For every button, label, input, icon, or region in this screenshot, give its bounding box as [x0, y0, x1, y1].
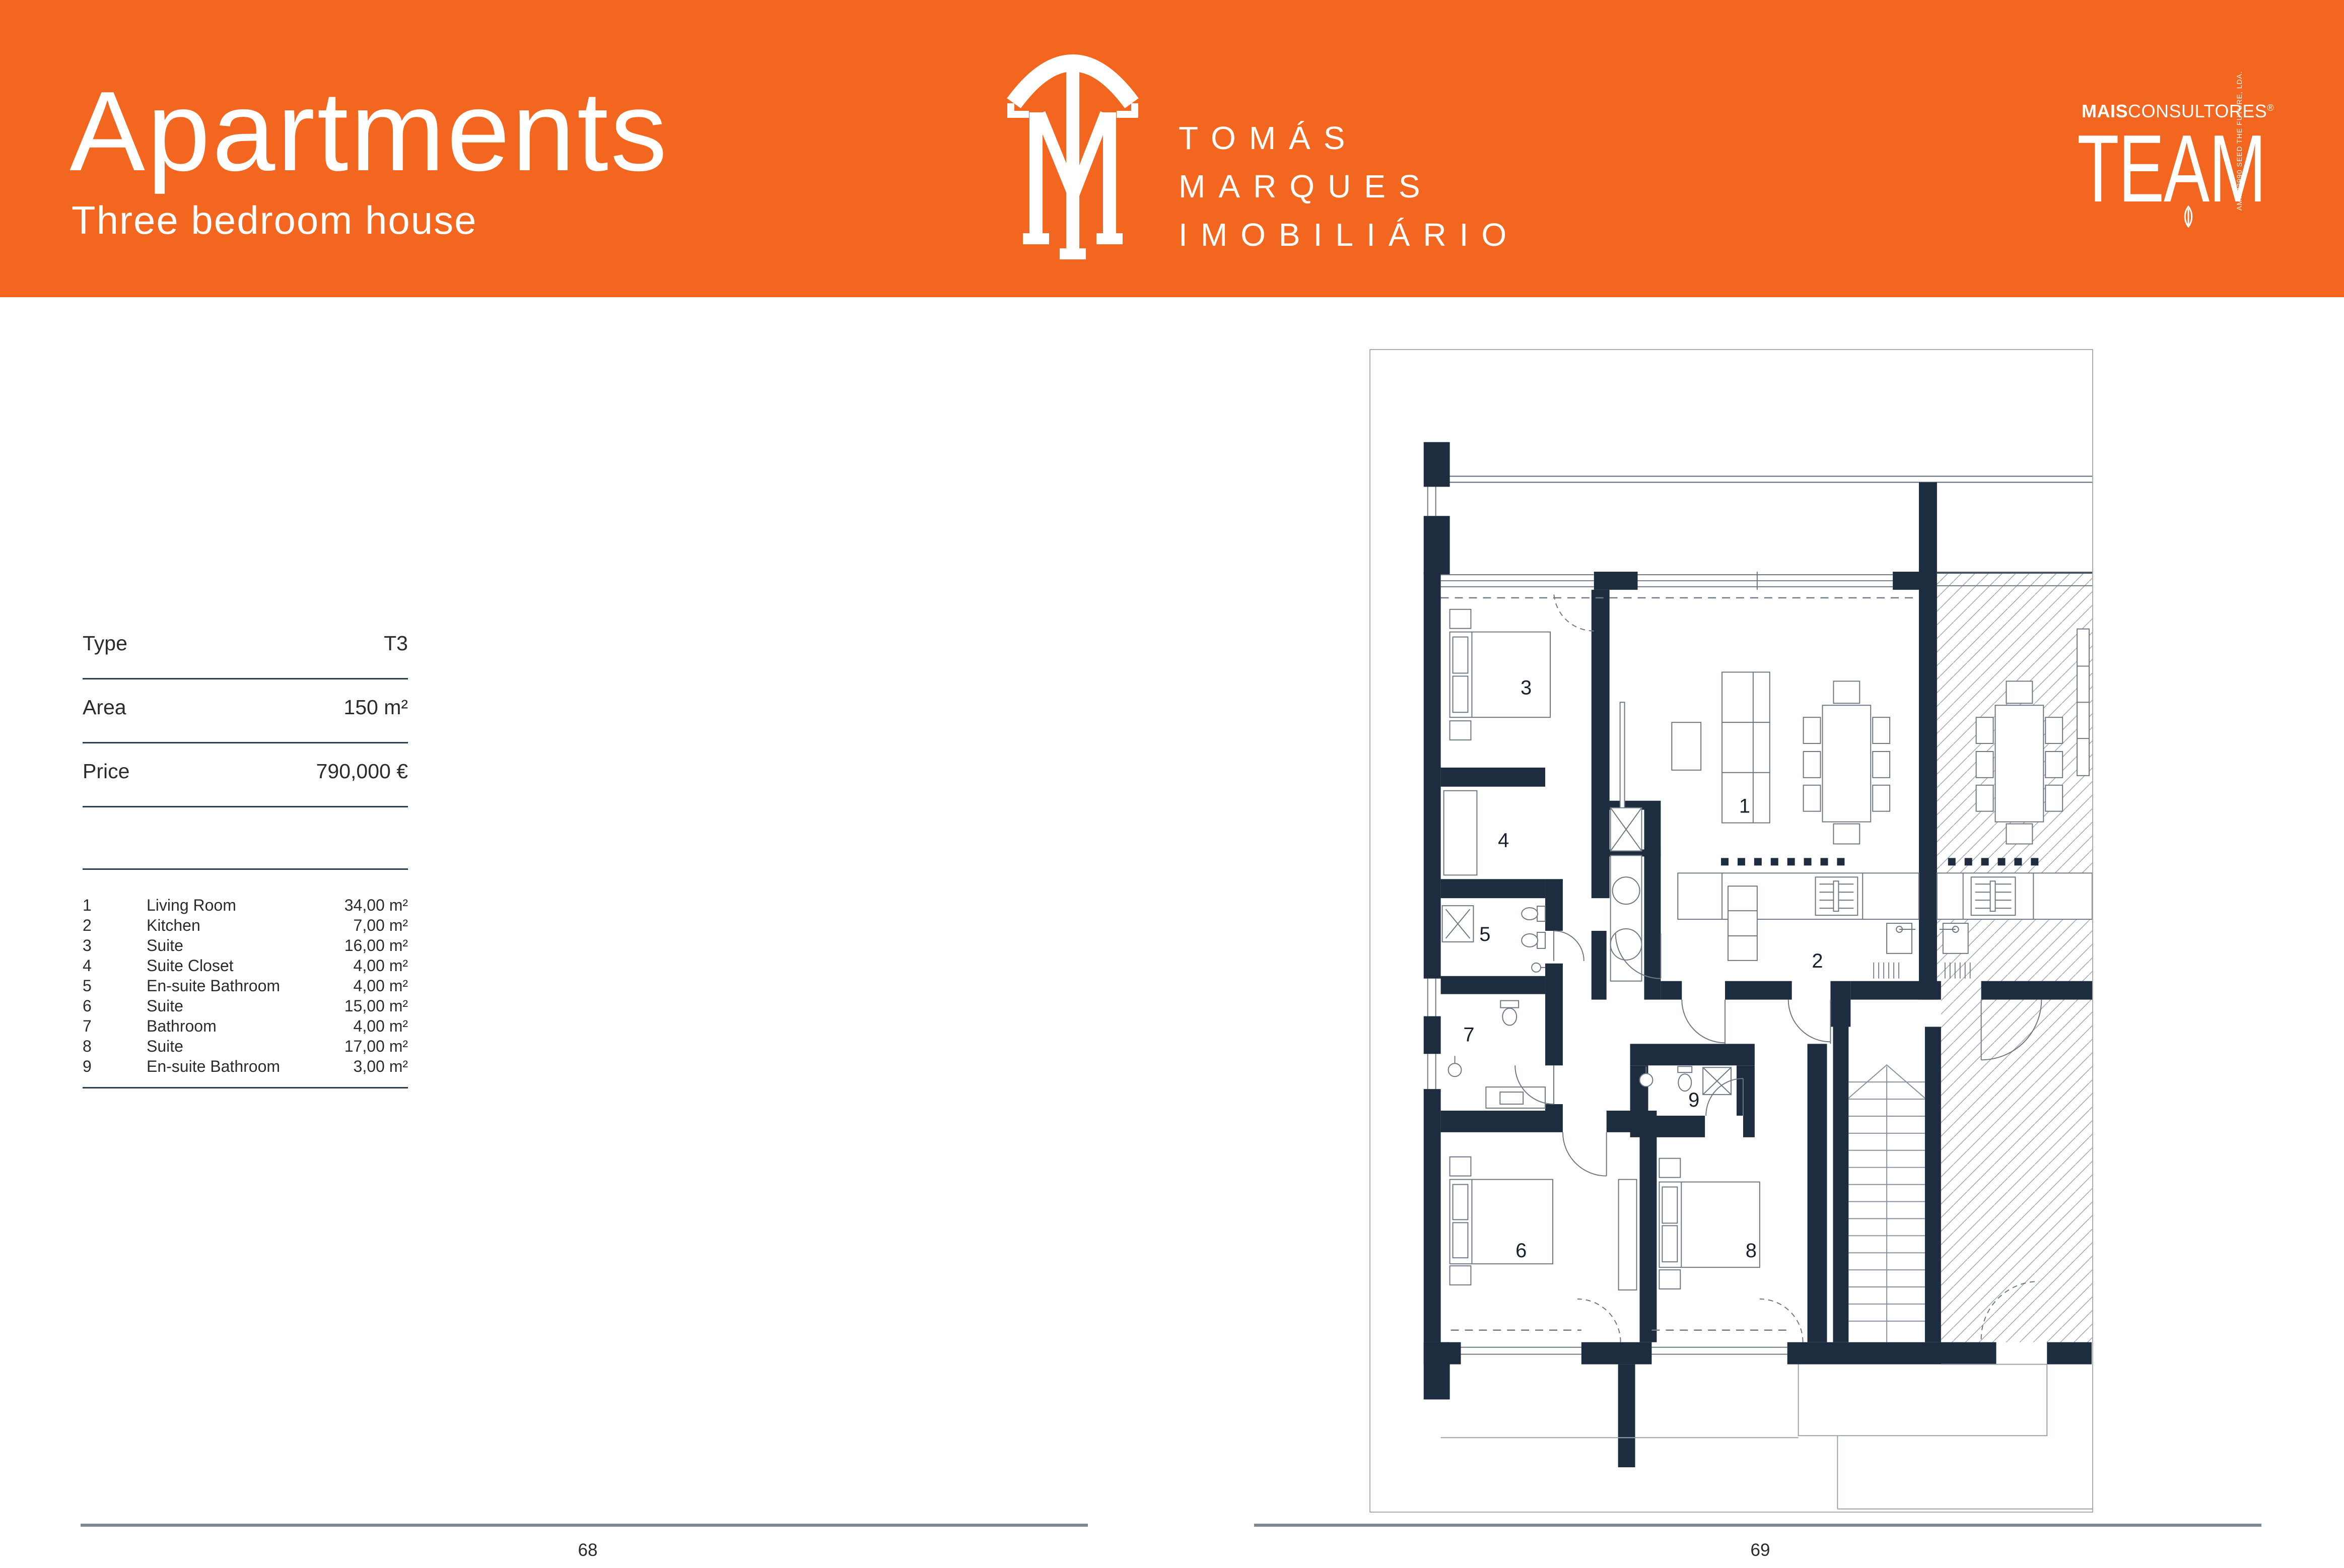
room-name: Suite [147, 997, 183, 1015]
room-name: Suite Closet [147, 957, 234, 975]
partner-license-text: AMI: 23990 SEED THE FUTURE, LDA. [2235, 130, 2243, 211]
plan-room-label-4: 4 [1498, 829, 1509, 851]
room-number: 9 [83, 1057, 92, 1076]
plan-room-label-2: 2 [1812, 950, 1823, 972]
details-table: TypeT3Area150 m²Price790,000 € [83, 616, 408, 807]
brand-line-3: IMOBILIÁRIO [1179, 211, 1520, 259]
lower-level-outline [1441, 1365, 2092, 1509]
room-area: 4,00 m² [354, 957, 408, 975]
site-boundary-lines [1446, 476, 2092, 483]
detail-label: Area [83, 696, 126, 719]
room-number: 8 [83, 1037, 92, 1056]
room-area: 17,00 m² [344, 1037, 408, 1056]
plan-room-label-1: 1 [1739, 795, 1750, 817]
plan-room-label-5: 5 [1479, 923, 1490, 945]
room-area: 7,00 m² [354, 916, 408, 935]
room-number: 4 [83, 957, 92, 975]
brand-line-1: TOMÁS [1179, 114, 1520, 162]
brand-line-2: MARQUES [1179, 162, 1520, 211]
detail-value: 150 m² [343, 696, 408, 719]
room-list-rows: 1Living Room34,00 m²2Kitchen7,00 m²3Suit… [83, 896, 408, 1077]
room-number: 3 [83, 936, 92, 955]
room-list-row: 8Suite17,00 m² [83, 1037, 408, 1057]
page-number-left: 68 [558, 1540, 618, 1560]
room-list-row: 5En-suite Bathroom4,00 m² [83, 977, 408, 997]
detail-label: Price [83, 760, 129, 783]
detail-row-area: Area150 m² [83, 679, 408, 743]
room-area: 16,00 m² [344, 936, 408, 955]
room-number: 7 [83, 1017, 92, 1036]
footer-rule-left [81, 1524, 1088, 1527]
room-name: Living Room [147, 896, 236, 915]
room-list-row: 4Suite Closet4,00 m² [83, 957, 408, 977]
room-list-row: 2Kitchen7,00 m² [83, 916, 408, 936]
plan-room-label-9: 9 [1688, 1089, 1699, 1111]
page-number-right: 69 [1730, 1540, 1790, 1560]
page-subtitle: Three bedroom house [72, 200, 477, 240]
floor-plan-drawing: 123456789 [1370, 350, 2092, 1512]
room-area: 15,00 m² [344, 997, 408, 1015]
plan-room-label-6: 6 [1515, 1240, 1527, 1262]
plan-room-label-3: 3 [1521, 676, 1532, 699]
registered-mark: ® [2267, 103, 2274, 113]
room-list-row: 1Living Room34,00 m² [83, 896, 408, 916]
page-title: Apartments [70, 75, 669, 188]
room-area: 4,00 m² [354, 977, 408, 995]
room-area: 4,00 m² [354, 1017, 408, 1036]
detail-row-price: Price790,000 € [83, 743, 408, 807]
room-number: 5 [83, 977, 92, 995]
header-band: Apartments Three bedroom house TOMÁS MAR… [0, 0, 2344, 297]
room-number: 1 [83, 896, 92, 915]
room-list-row: 9En-suite Bathroom3,00 m² [83, 1057, 408, 1077]
room-name: En-suite Bathroom [147, 1057, 280, 1076]
footer-rule-right [1254, 1524, 2261, 1527]
room-number: 2 [83, 916, 92, 935]
tm-monogram-icon [1000, 28, 1146, 264]
detail-value: 790,000 € [316, 760, 408, 783]
brochure-page: Apartments Three bedroom house TOMÁS MAR… [0, 0, 2344, 1568]
room-number: 6 [83, 997, 92, 1015]
room-name: Suite [147, 936, 183, 955]
detail-label: Type [83, 632, 127, 655]
room-list-row: 6Suite15,00 m² [83, 997, 408, 1017]
plan-room-label-8: 8 [1746, 1240, 1757, 1262]
brand-wordmark: TOMÁS MARQUES IMOBILIÁRIO [1179, 114, 1520, 259]
room-list: 1Living Room34,00 m²2Kitchen7,00 m²3Suit… [83, 868, 408, 1088]
room-name: Kitchen [147, 916, 200, 935]
plan-room-label-7: 7 [1463, 1024, 1474, 1046]
floor-plan-frame: 123456789 [1369, 349, 2093, 1513]
seed-leaf-icon [2180, 206, 2197, 228]
room-list-row: 7Bathroom4,00 m² [83, 1017, 408, 1037]
room-area: 3,00 m² [354, 1057, 408, 1076]
partner-logo: MAISCONSULTORES® TEAM AMI: 23990 SEED TH… [2070, 101, 2282, 232]
room-area: 34,00 m² [344, 896, 408, 915]
detail-value: T3 [384, 632, 408, 655]
detail-row-type: TypeT3 [83, 616, 408, 679]
room-name: Bathroom [147, 1017, 217, 1036]
staircase [1848, 1065, 1925, 1342]
room-list-row: 3Suite16,00 m² [83, 936, 408, 957]
room-name: En-suite Bathroom [147, 977, 280, 995]
room-name: Suite [147, 1037, 183, 1056]
